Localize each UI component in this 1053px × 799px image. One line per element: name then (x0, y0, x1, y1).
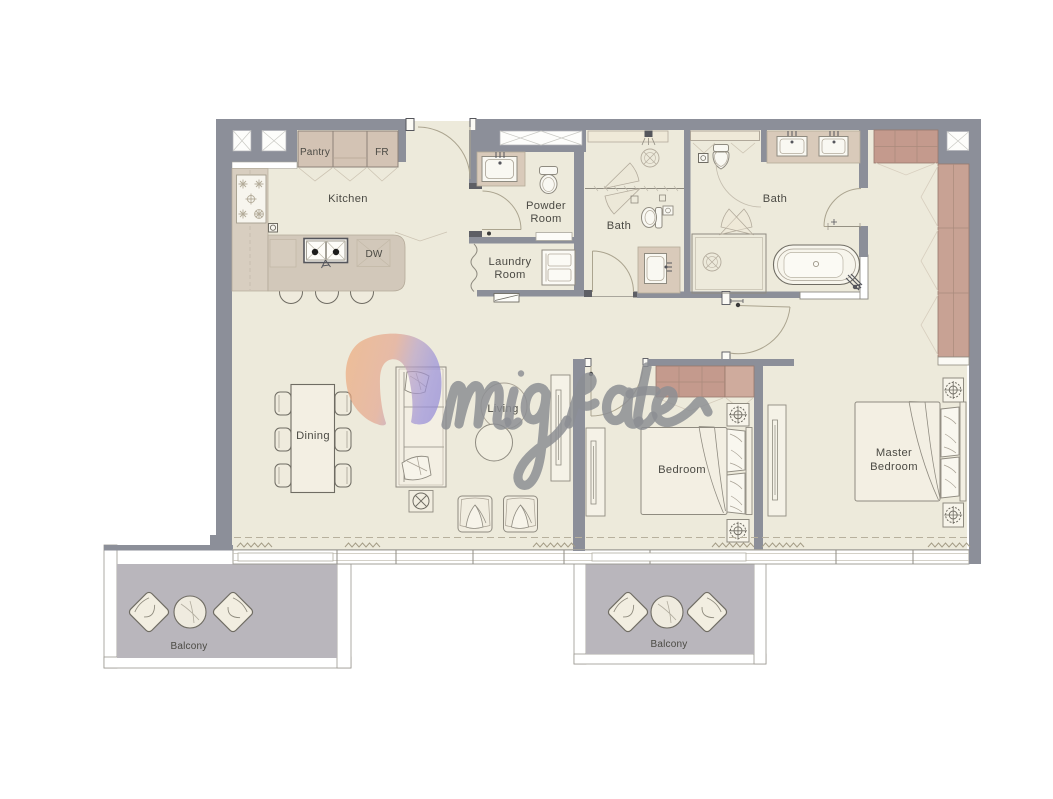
svg-text:Powder: Powder (526, 200, 566, 212)
svg-text:Room: Room (494, 269, 525, 281)
svg-text:Dining: Dining (296, 430, 330, 442)
svg-text:Pantry: Pantry (300, 147, 330, 158)
svg-text:Bath: Bath (607, 220, 631, 232)
svg-text:Laundry: Laundry (489, 256, 532, 268)
svg-text:Master: Master (876, 447, 912, 459)
svg-text:DW: DW (365, 249, 382, 260)
svg-text:Bedroom: Bedroom (658, 464, 706, 476)
svg-text:Bath: Bath (763, 193, 787, 205)
svg-text:Balcony: Balcony (651, 639, 688, 650)
svg-text:FR: FR (375, 147, 389, 158)
svg-text:Kitchen: Kitchen (328, 193, 368, 205)
svg-text:Room: Room (530, 213, 561, 225)
svg-text:Bedroom: Bedroom (870, 461, 918, 473)
svg-text:Balcony: Balcony (171, 641, 208, 652)
